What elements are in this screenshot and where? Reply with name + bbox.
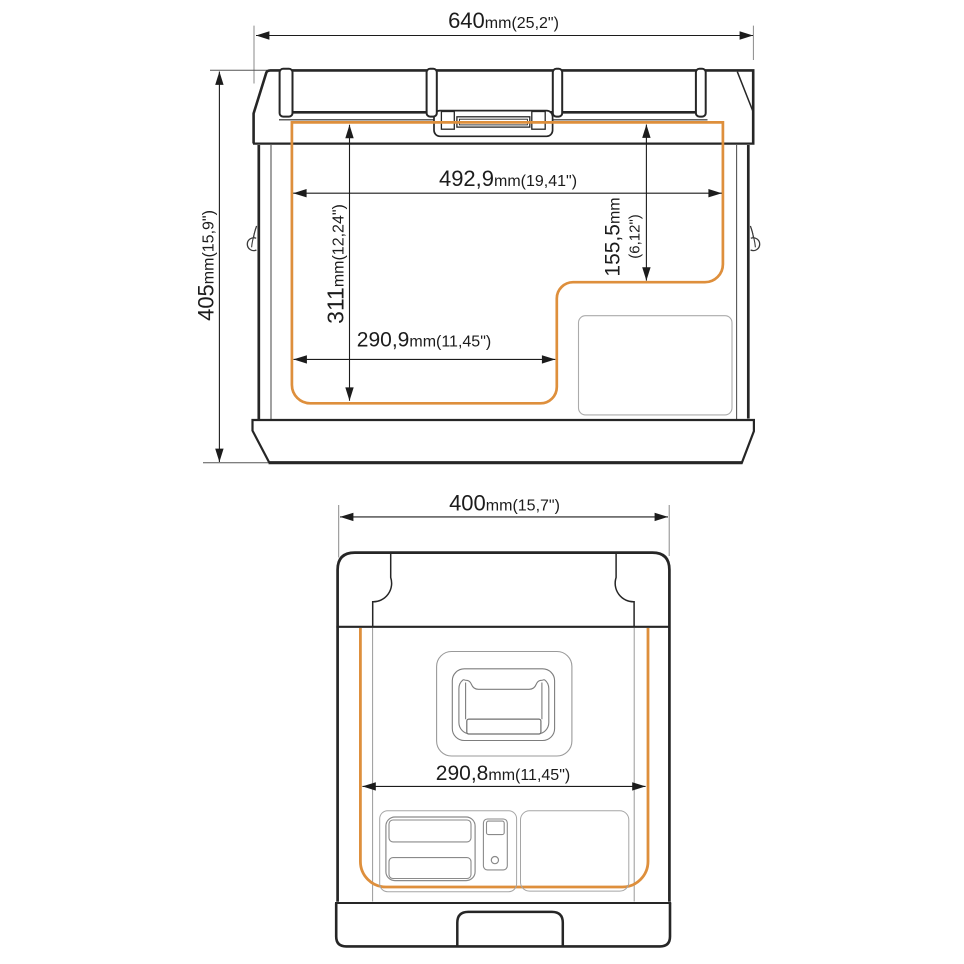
svg-text:405mm(15,9"): 405mm(15,9") (194, 210, 219, 321)
svg-text:155,5mm: 155,5mm (602, 197, 625, 276)
svg-text:290,9mm(11,45"): 290,9mm(11,45") (357, 329, 491, 352)
svg-text:492,9mm(19,41"): 492,9mm(19,41") (439, 166, 577, 191)
svg-text:(6,12"): (6,12") (627, 214, 644, 259)
svg-text:640mm(25,2"): 640mm(25,2") (448, 8, 559, 33)
svg-text:311mm(12,24"): 311mm(12,24") (323, 204, 349, 324)
svg-text:290,8mm(11,45"): 290,8mm(11,45") (436, 762, 570, 785)
svg-text:400mm(15,7"): 400mm(15,7") (449, 491, 560, 516)
